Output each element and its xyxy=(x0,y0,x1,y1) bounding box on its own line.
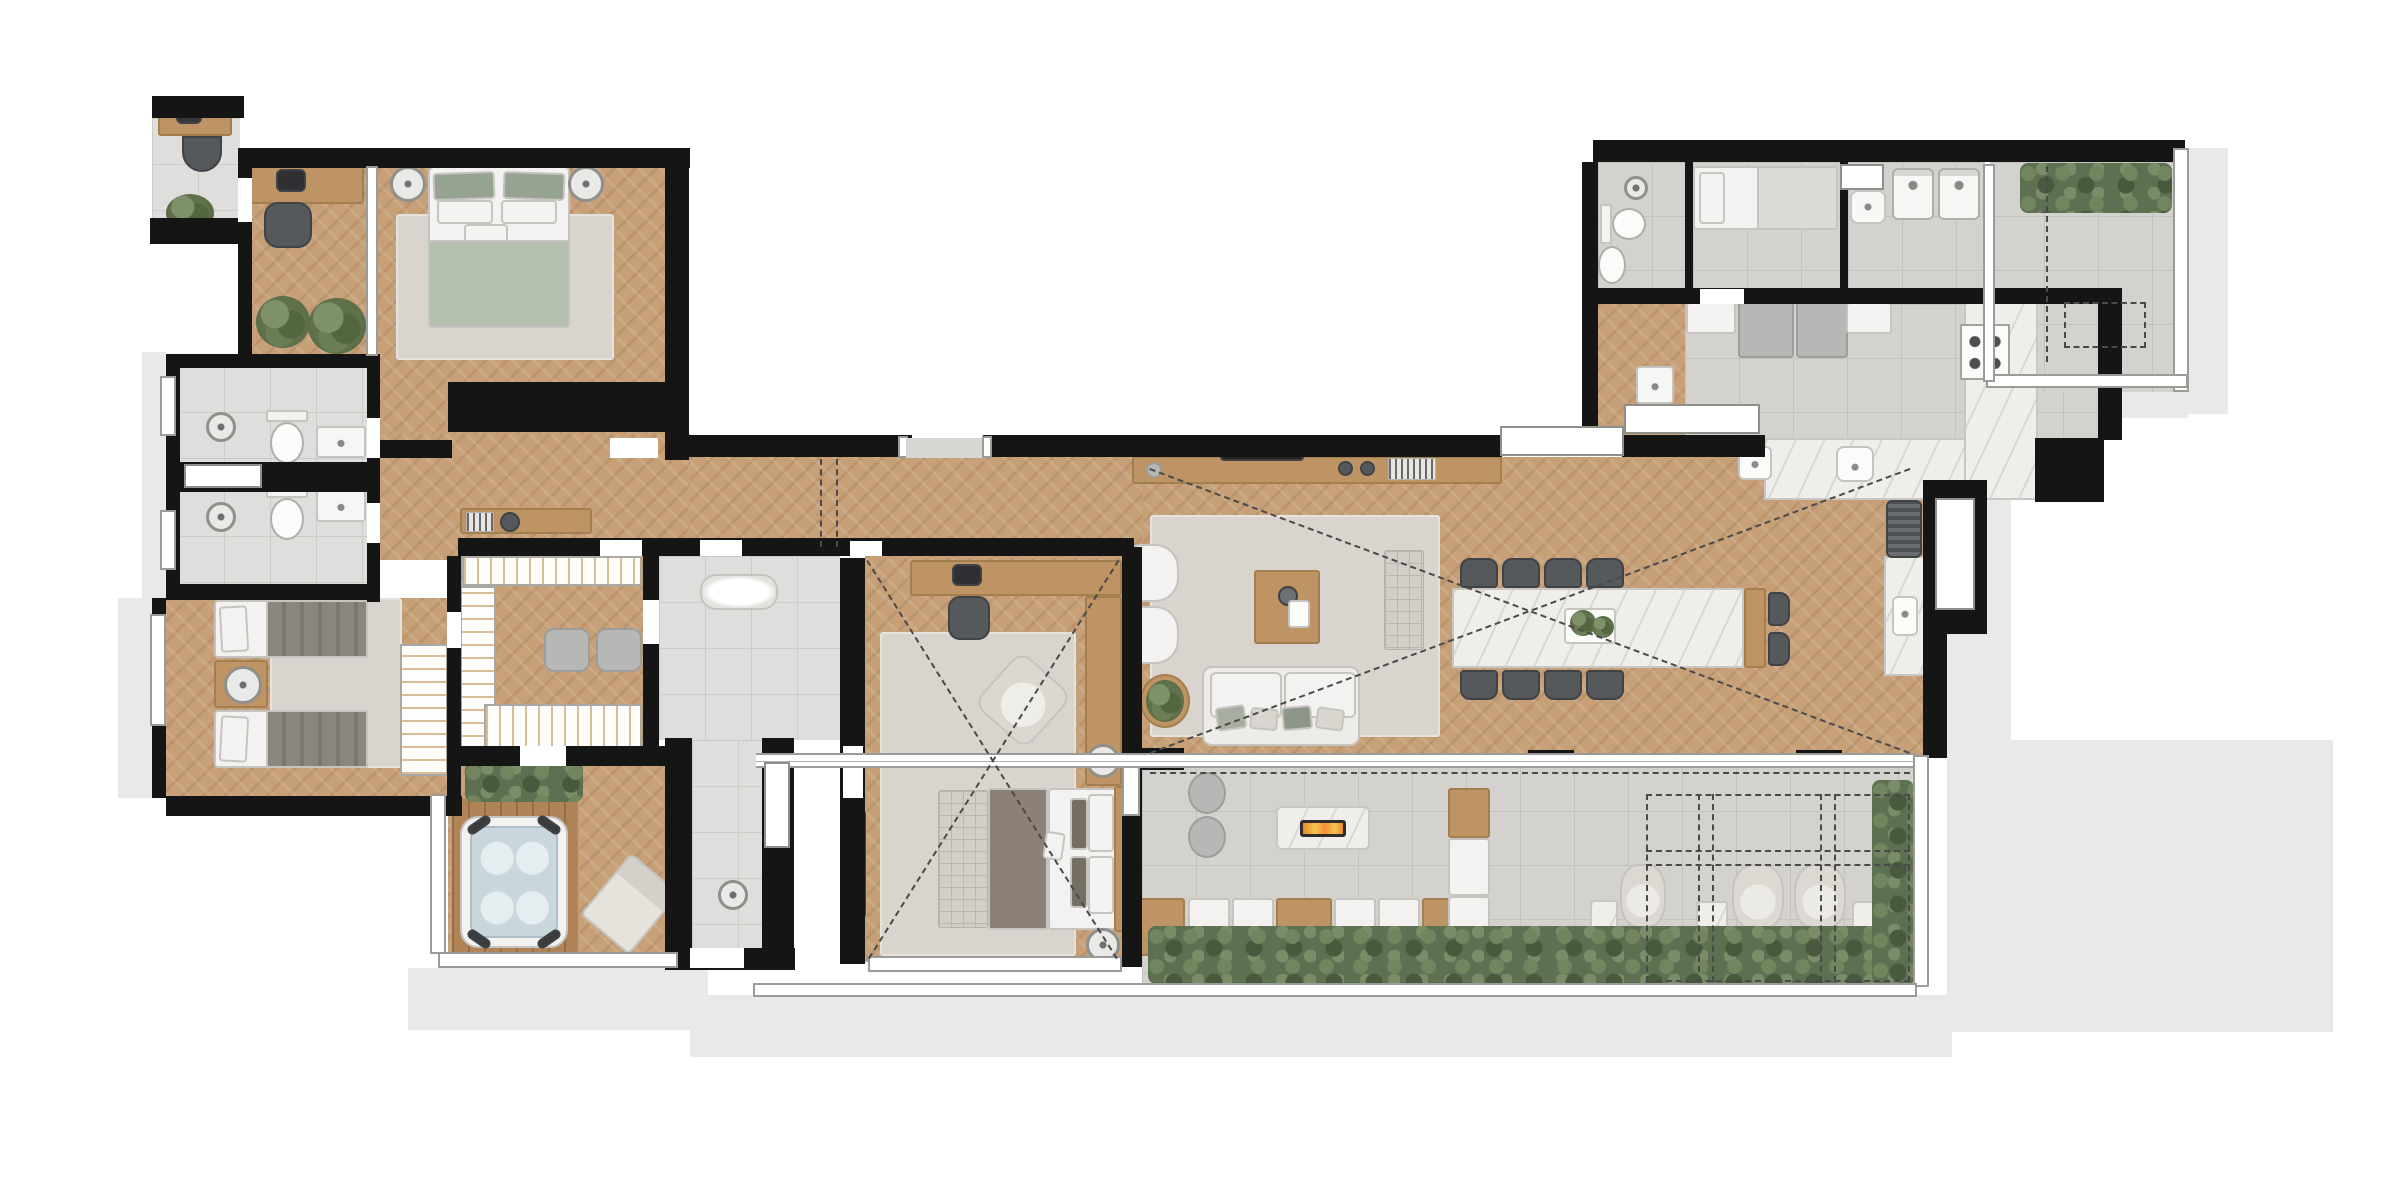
maid-bed-pillow xyxy=(1699,172,1725,224)
bed3a-pillow xyxy=(219,605,249,652)
bed2-duvet xyxy=(428,240,570,328)
bath2-toilet-bowl xyxy=(270,498,304,540)
living-console xyxy=(1132,456,1502,484)
wall xyxy=(152,96,244,118)
plant-office-1 xyxy=(256,296,310,348)
washer-2 xyxy=(1938,168,1980,220)
dining-chair-t2 xyxy=(1502,558,1540,588)
dining-chair-b1 xyxy=(1460,670,1498,700)
wardrobe-bedroom3 xyxy=(400,644,448,776)
pergola-line-v1 xyxy=(1698,794,1700,982)
dining-chair-head-2 xyxy=(1768,632,1790,666)
plant-office-2 xyxy=(308,298,366,354)
parapet-service-east xyxy=(2173,148,2189,392)
door-gap-masterbath xyxy=(700,540,742,556)
door-gap-bath2 xyxy=(367,503,380,543)
office-laptop xyxy=(276,169,306,192)
service-basin xyxy=(1598,246,1626,284)
terrace-pouf-1 xyxy=(1188,772,1226,814)
slab-bottom-right xyxy=(1947,740,2333,1032)
bed3-nightstand-tray xyxy=(224,666,262,704)
door-gap-closet-right xyxy=(643,600,659,644)
bath1-shower xyxy=(206,412,236,442)
bed3b-pillow xyxy=(219,715,249,762)
dining-chair-b3 xyxy=(1544,670,1582,700)
service-toilet-tank xyxy=(1600,204,1612,244)
bath1-vanity xyxy=(316,426,366,458)
niche-buffet xyxy=(1624,404,1760,434)
service-bath-shower xyxy=(1624,176,1648,200)
coffee-table-papers xyxy=(1288,600,1310,628)
nightstand-2r xyxy=(568,166,604,202)
wall xyxy=(150,218,244,244)
wall xyxy=(238,148,690,168)
office-chair xyxy=(264,202,312,248)
terrace-pouf-2 xyxy=(1188,816,1226,858)
wall xyxy=(448,396,684,432)
hall-console-books xyxy=(466,512,494,532)
door-gap-kitchen xyxy=(1700,289,1744,304)
slab-bottom-left xyxy=(408,968,708,1030)
sliding-door-terrace xyxy=(756,753,1916,768)
living-console-speaker-2 xyxy=(1360,461,1375,476)
bed2-pillow-white-l xyxy=(437,200,493,224)
entry-door-jamb-r xyxy=(982,436,992,458)
wall xyxy=(1685,162,1693,290)
niche-entry-cabinet xyxy=(1500,426,1624,456)
bed2-pillow-white-r xyxy=(501,200,557,224)
dining-chair-t3 xyxy=(1544,558,1582,588)
wall xyxy=(367,354,380,602)
bed3a-blanket xyxy=(266,600,368,658)
wall xyxy=(2035,438,2104,502)
laundry-sink xyxy=(1850,190,1886,224)
hot-tub-water xyxy=(470,826,558,938)
closet-shelf-bottom xyxy=(484,704,642,752)
master-pillow-white-1 xyxy=(1088,794,1114,852)
niche-bath-shaft xyxy=(184,464,262,488)
hedge-hot-tub xyxy=(465,762,583,802)
door-gap-bedroom3 xyxy=(447,612,461,648)
lavabo-vanity xyxy=(1636,366,1674,404)
wall xyxy=(178,354,378,368)
sofa-pillow-3 xyxy=(1281,705,1313,732)
parapet-terrace-south xyxy=(753,983,1917,997)
niche-maid-shelf xyxy=(1840,164,1884,190)
sofa-pillow-4 xyxy=(1315,706,1346,732)
window-hot-tub-west xyxy=(430,794,446,954)
wall xyxy=(378,440,452,458)
hall-console-speaker xyxy=(500,512,520,532)
room-master-bath-lower xyxy=(692,740,762,950)
slab-bottom-band xyxy=(690,995,1952,1057)
wall xyxy=(1598,288,2102,304)
kitchen-prep-table-2 xyxy=(1796,302,1848,358)
wall xyxy=(448,382,688,396)
door-gap-terrace-hot-tub xyxy=(520,746,566,766)
wall xyxy=(1593,140,2185,162)
bath2-shower xyxy=(206,502,236,532)
hedge-service-terrace xyxy=(2020,163,2172,213)
pergola-outline xyxy=(1646,794,1910,982)
wet-bar-sink xyxy=(1892,596,1918,636)
wall xyxy=(178,584,376,600)
dining-chair-b4 xyxy=(1586,670,1624,700)
window-bath2 xyxy=(160,510,176,570)
pergola-line-v4 xyxy=(1834,794,1836,982)
master-bed-duvet xyxy=(988,788,1048,930)
washer-1 xyxy=(1892,168,1934,220)
plant-living xyxy=(1146,680,1184,722)
service-toilet-bowl xyxy=(1612,208,1646,240)
door-gap-bedroom2 xyxy=(610,438,658,458)
door-gap-masterbath-lower xyxy=(690,948,744,968)
dining-chair-t1 xyxy=(1460,558,1498,588)
wall xyxy=(983,435,1502,457)
master-bed-footbench xyxy=(938,790,988,928)
closet-pouf-2 xyxy=(596,628,642,672)
wall xyxy=(643,556,659,752)
kitchen-prep-table-1 xyxy=(1738,302,1794,358)
master-laptop xyxy=(952,564,982,586)
pergola-line-h2 xyxy=(1646,864,1910,866)
wall xyxy=(458,538,1134,556)
niche-masterbath-shaft xyxy=(764,762,790,848)
dining-chair-head-1 xyxy=(1768,592,1790,626)
chaise-wood-head xyxy=(1448,788,1490,838)
pergola-line-v3 xyxy=(1820,794,1822,982)
parapet-terrace-east xyxy=(1913,755,1929,987)
slab-right-top xyxy=(2186,148,2228,414)
floor-plan xyxy=(0,0,2398,1181)
wall xyxy=(1622,435,1765,457)
entry-threshold xyxy=(906,438,984,458)
ceiling-dash-hall-1 xyxy=(820,459,822,547)
master-pillow-dark-1 xyxy=(1070,798,1088,850)
nightstand-2l xyxy=(390,166,426,202)
master-pillow-white-2 xyxy=(1088,856,1114,914)
glass-partition-office xyxy=(366,166,378,356)
pergola-line-h1 xyxy=(1646,850,1910,852)
master-desk-chair xyxy=(948,596,990,640)
window-bath1 xyxy=(160,376,176,436)
bed3b-blanket xyxy=(266,710,368,768)
window-hot-tub-south xyxy=(438,952,678,968)
dining-chair-b2 xyxy=(1502,670,1540,700)
master-bath-tub xyxy=(700,574,778,610)
window-master-south xyxy=(868,956,1122,972)
pergola-line-v2 xyxy=(1712,794,1714,982)
door-gap-bath1 xyxy=(367,418,380,458)
kitchen-cabinet-2 xyxy=(1846,302,1892,334)
closet-pouf-1 xyxy=(544,628,590,672)
dash-terrace-top xyxy=(1150,772,1910,774)
closet-shelf-top xyxy=(462,556,642,586)
living-coffee-table xyxy=(1254,570,1320,644)
office-desk xyxy=(250,166,364,204)
living-console-books xyxy=(1388,458,1436,480)
niche-livingwall-shaft xyxy=(1935,498,1975,610)
maid-bed-blanket xyxy=(1757,166,1838,230)
door-gap-master xyxy=(850,541,882,556)
dash-service-terrace xyxy=(2046,166,2048,362)
wall xyxy=(166,796,462,816)
wall xyxy=(1923,632,1947,758)
bed2-pillow-sage-l xyxy=(433,171,496,201)
wall xyxy=(665,738,692,970)
master-desk xyxy=(910,560,1122,596)
kitchen-cabinet-1 xyxy=(1686,302,1736,334)
dining-table-wood-end xyxy=(1744,588,1766,668)
bed2-pillow-sage-r xyxy=(503,171,566,201)
island-sink xyxy=(1836,446,1874,482)
bath1-toilet-bowl xyxy=(270,422,304,464)
glass-laundry-terrace xyxy=(1983,164,1995,382)
parapet-service-south xyxy=(1986,374,2188,388)
wet-bar-vent xyxy=(1886,500,1922,558)
window-bedroom3 xyxy=(150,614,166,726)
living-console-speaker-1 xyxy=(1338,461,1353,476)
wall xyxy=(665,435,912,457)
ceiling-dash-hall-2 xyxy=(836,459,838,547)
chaise-cushion-1 xyxy=(1448,838,1490,896)
hall-entry xyxy=(690,457,1142,549)
master-bath-shower xyxy=(718,880,748,910)
bath1-toilet-tank xyxy=(266,410,308,422)
wall xyxy=(1582,162,1598,446)
fire-table-burner xyxy=(1300,820,1346,837)
dash-service-marker xyxy=(2064,302,2146,348)
door-gap-closet xyxy=(600,540,642,556)
door-gap-balcony xyxy=(238,178,252,222)
bath2-vanity xyxy=(316,490,366,522)
